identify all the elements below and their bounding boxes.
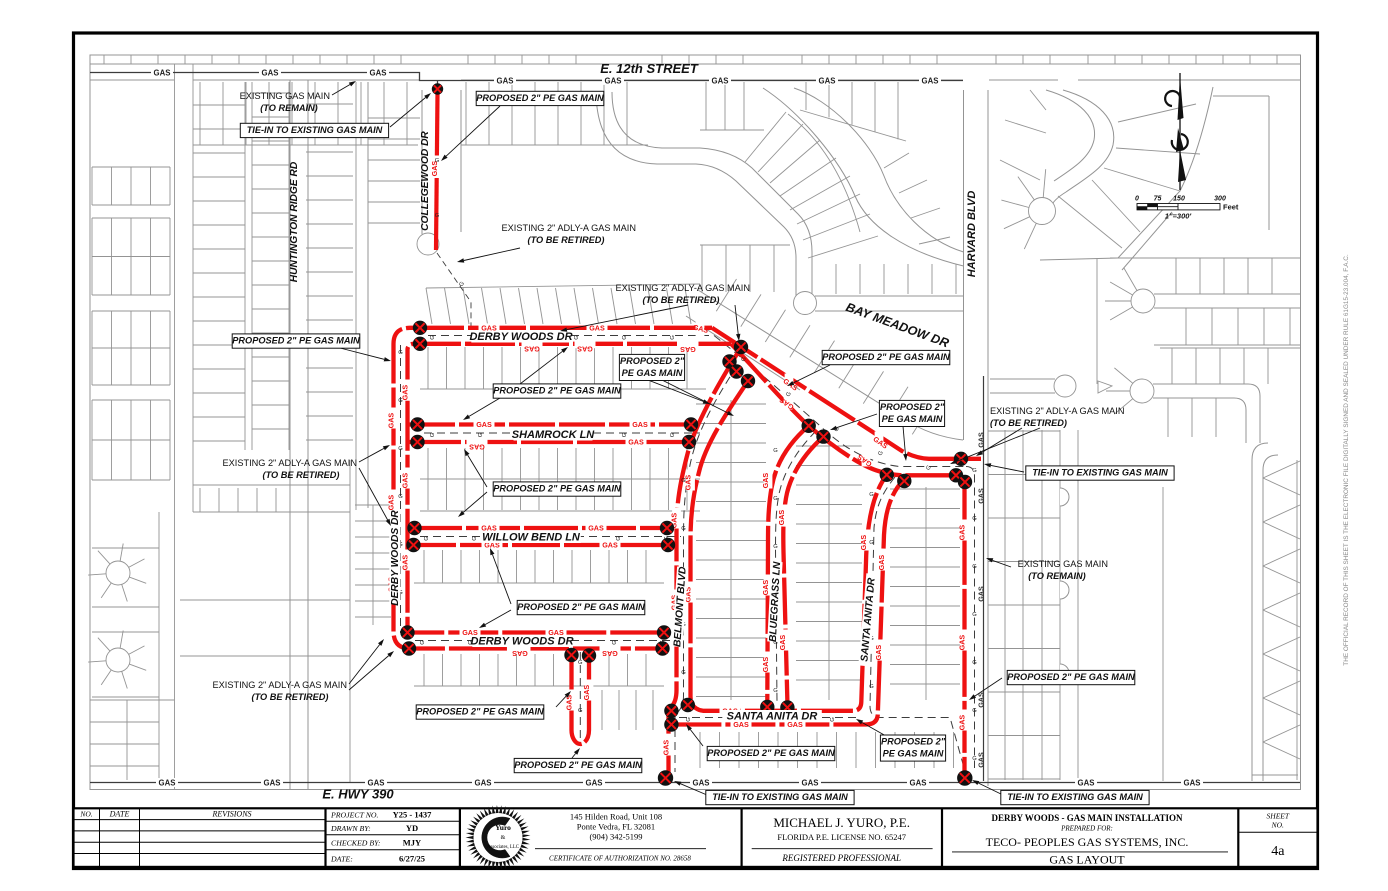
svg-text:WILLOW BEND LN: WILLOW BEND LN [482,532,581,544]
svg-text:PROPOSED 2": PROPOSED 2" [880,402,945,412]
svg-text:GAS: GAS [958,715,967,731]
svg-text:DERBY WOODS DR: DERBY WOODS DR [390,510,401,606]
svg-text:TECO- PEOPLES GAS SYSTEMS, INC: TECO- PEOPLES GAS SYSTEMS, INC. [986,835,1189,849]
svg-text:G: G [972,612,977,618]
svg-text:GAS: GAS [874,645,883,661]
svg-text:G: G [612,640,618,645]
svg-text:SANTA ANITA DR: SANTA ANITA DR [727,711,818,723]
svg-text:MJY: MJY [403,838,421,848]
svg-text:PROPOSED 2" PE GAS MAIN: PROPOSED 2" PE GAS MAIN [416,706,544,716]
svg-text:CERTIFICATE OF AUTHORIZATION N: CERTIFICATE OF AUTHORIZATION NO. 28658 [549,855,691,863]
svg-text:G: G [398,446,403,452]
svg-text:SHEET: SHEET [1267,812,1290,821]
svg-text:G: G [398,350,403,356]
svg-text:G: G [773,544,778,550]
svg-text:GAS: GAS [264,779,281,788]
svg-text:EXISTING 2" ADLY-A GAS MAIN: EXISTING 2" ADLY-A GAS MAIN [990,406,1124,416]
svg-text:GAS: GAS [387,495,396,511]
svg-text:G: G [622,432,628,437]
svg-text:G: G [972,516,977,522]
svg-text:DERBY WOODS - GAS MAIN INSTALL: DERBY WOODS - GAS MAIN INSTALLATION [992,813,1183,823]
svg-text:G: G [773,688,778,694]
svg-text:PROPOSED 2" PE GAS MAIN: PROPOSED 2" PE GAS MAIN [707,748,835,758]
svg-text:EXISTING GAS MAIN: EXISTING GAS MAIN [1018,559,1108,569]
svg-text:&: & [501,835,506,841]
svg-text:GAS: GAS [370,69,387,78]
svg-text:GAS: GAS [159,779,176,788]
svg-text:GAS: GAS [859,535,868,551]
svg-text:G: G [398,494,403,500]
svg-text:THE OFFICIAL RECORD OF THIS SH: THE OFFICIAL RECORD OF THIS SHEET IS THE… [1343,254,1350,666]
svg-text:GAS: GAS [977,586,986,602]
svg-text:G: G [670,335,676,340]
svg-text:(TO REMAIN): (TO REMAIN) [260,103,318,113]
svg-text:GAS: GAS [577,344,593,353]
svg-text:GAS: GAS [262,69,279,78]
svg-text:TIE-IN TO EXISTING GAS MAIN: TIE-IN TO EXISTING GAS MAIN [247,125,383,135]
svg-text:EXISTING 2" ADLY-A GAS MAIN: EXISTING 2" ADLY-A GAS MAIN [223,458,357,468]
svg-text:G: G [972,660,977,666]
svg-text:145 Hilden Road, Unit 108: 145 Hilden Road, Unit 108 [570,812,662,822]
svg-text:GAS: GAS [802,779,819,788]
svg-text:GAS: GAS [977,432,986,448]
svg-text:G: G [972,468,977,474]
svg-text:FLORIDA P.E. LICENSE NO. 65247: FLORIDA P.E. LICENSE NO. 65247 [777,832,906,842]
svg-text:GAS: GAS [761,580,770,596]
svg-text:PE GAS MAIN: PE GAS MAIN [882,414,943,424]
svg-text:G: G [670,432,676,437]
svg-text:150: 150 [1173,196,1185,203]
svg-text:E. HWY 390: E. HWY 390 [322,787,394,802]
svg-text:PROPOSED 2" PE GAS MAIN: PROPOSED 2" PE GAS MAIN [493,484,621,494]
svg-text:MICHAEL J. YURO, P.E.: MICHAEL J. YURO, P.E. [773,815,910,830]
svg-text:EXISTING GAS MAIN: EXISTING GAS MAIN [240,91,330,101]
svg-text:G: G [424,536,430,541]
svg-text:GAS: GAS [401,555,410,571]
svg-text:G: G [869,540,874,546]
svg-text:GAS: GAS [662,740,671,756]
svg-text:GAS: GAS [588,524,604,533]
svg-text:GAS: GAS [524,344,540,353]
svg-text:REVISIONS: REVISIONS [211,810,251,819]
svg-text:DATE: DATE [109,810,130,819]
svg-text:GAS: GAS [910,779,927,788]
svg-text:CHECKED BY:: CHECKED BY: [331,839,381,848]
svg-text:PROPOSED 2" PE GAS MAIN: PROPOSED 2" PE GAS MAIN [1007,672,1135,682]
svg-text:(TO REMAIN): (TO REMAIN) [1028,571,1086,581]
svg-text:HUNTINGTON RIDGE RD: HUNTINGTON RIDGE RD [289,161,300,282]
svg-text:GAS: GAS [1078,779,1095,788]
svg-text:SHAMROCK LN: SHAMROCK LN [512,429,596,441]
svg-text:G: G [435,158,440,164]
svg-text:GAS: GAS [602,649,618,658]
svg-text:G: G [616,536,622,541]
svg-text:E. 12th STREET: E. 12th STREET [600,61,699,76]
svg-text:DERBY WOODS DR: DERBY WOODS DR [470,636,573,648]
svg-text:DERBY WOODS DR: DERBY WOODS DR [469,331,572,343]
svg-text:GAS: GAS [819,77,836,86]
svg-text:Y25 - 1437: Y25 - 1437 [393,810,432,820]
svg-text:G: G [869,684,874,690]
svg-text:COLLEGEWOOD DR: COLLEGEWOOD DR [420,131,431,231]
svg-text:Ponte Vedra, FL 32081: Ponte Vedra, FL 32081 [577,822,655,832]
svg-text:(TO BE RETIRED): (TO BE RETIRED) [990,418,1067,428]
svg-text:TIE-IN TO EXISTING GAS MAIN: TIE-IN TO EXISTING GAS MAIN [1032,468,1168,478]
svg-text:GAS: GAS [475,779,492,788]
svg-text:GAS: GAS [602,541,618,550]
svg-text:Yuro: Yuro [495,823,511,832]
svg-text:GAS: GAS [680,345,696,354]
svg-text:GAS: GAS [1184,779,1201,788]
svg-text:PROJECT NO.: PROJECT NO. [330,811,379,820]
svg-text:(TO BE RETIRED): (TO BE RETIRED) [263,470,340,480]
svg-text:GAS LAYOUT: GAS LAYOUT [1049,853,1125,867]
svg-text:G: G [420,640,426,645]
svg-text:G: G [830,717,836,722]
svg-text:0: 0 [1135,196,1139,203]
svg-text:GAS: GAS [977,752,986,768]
svg-text:PROPOSED 2" PE GAS MAIN: PROPOSED 2" PE GAS MAIN [493,386,621,396]
svg-text:TIE-IN TO EXISTING GAS MAIN: TIE-IN TO EXISTING GAS MAIN [712,792,848,802]
svg-text:GAS: GAS [922,77,939,86]
svg-text:G: G [578,660,583,666]
svg-text:NO.: NO. [79,810,92,819]
svg-text:G: G [398,398,403,404]
svg-text:G: G [681,478,686,484]
svg-text:G: G [773,496,778,502]
svg-text:GAS: GAS [476,420,492,429]
svg-text:(TO BE RETIRED): (TO BE RETIRED) [528,235,605,245]
svg-text:Associates, LLC: Associates, LLC [487,845,519,850]
svg-text:NO.: NO. [1271,821,1284,830]
svg-text:GAS: GAS [586,779,603,788]
svg-text:PROPOSED 2" PE GAS MAIN: PROPOSED 2" PE GAS MAIN [232,336,360,346]
svg-text:G: G [478,432,484,437]
svg-text:EXISTING 2" ADLY-A GAS MAIN: EXISTING 2" ADLY-A GAS MAIN [616,283,750,293]
svg-text:HARVARD BLVD: HARVARD BLVD [966,191,978,278]
svg-text:6/27/25: 6/27/25 [399,854,425,864]
svg-text:GAS: GAS [401,473,410,489]
svg-text:G: G [435,213,440,219]
svg-text:Feet: Feet [1223,203,1239,212]
svg-text:PROPOSED 2" PE GAS MAIN: PROPOSED 2" PE GAS MAIN [476,93,604,103]
svg-text:TIE-IN TO EXISTING GAS MAIN: TIE-IN TO EXISTING GAS MAIN [1007,792,1143,802]
svg-text:GAS: GAS [387,413,396,429]
svg-text:G: G [869,492,874,498]
svg-text:(904) 342-5199: (904) 342-5199 [589,832,642,842]
svg-text:GAS: GAS [761,657,770,673]
svg-text:PROPOSED 2" PE GAS MAIN: PROPOSED 2" PE GAS MAIN [517,602,645,612]
svg-text:G: G [430,335,436,340]
svg-text:PE GAS MAIN: PE GAS MAIN [883,748,944,758]
svg-text:PREPARED FOR:: PREPARED FOR: [1060,825,1113,833]
svg-text:GAS: GAS [469,443,485,452]
svg-text:G: G [681,526,686,532]
svg-text:PROPOSED 2": PROPOSED 2" [881,737,946,747]
svg-text:GAS: GAS [582,685,591,701]
svg-text:G: G [972,756,977,762]
svg-text:PE GAS MAIN: PE GAS MAIN [622,368,683,378]
svg-text:YD: YD [406,823,418,833]
svg-text:G: G [578,708,583,714]
svg-text:G: G [773,448,778,454]
svg-text:4a: 4a [1271,844,1285,859]
svg-text:PROPOSED 2" PE GAS MAIN: PROPOSED 2" PE GAS MAIN [514,760,642,770]
svg-text:GAS: GAS [778,635,787,651]
svg-text:GAS: GAS [712,77,729,86]
svg-text:DRAWN BY:: DRAWN BY: [330,824,371,833]
svg-text:PROPOSED 2" PE GAS MAIN: PROPOSED 2" PE GAS MAIN [822,352,950,362]
svg-text:(TO BE RETIRED): (TO BE RETIRED) [643,295,720,305]
svg-text:GAS: GAS [777,510,786,526]
svg-text:GAS: GAS [958,635,967,651]
svg-text:GAS: GAS [693,779,710,788]
svg-text:G: G [686,717,692,722]
svg-text:GAS: GAS [877,555,886,571]
svg-text:G: G [472,536,478,541]
svg-text:EXISTING 2" ADLY-A GAS MAIN: EXISTING 2" ADLY-A GAS MAIN [502,223,636,233]
svg-text:300: 300 [1214,196,1226,203]
svg-text:75: 75 [1154,196,1162,203]
svg-text:GAS: GAS [497,77,514,86]
svg-text:(TO BE RETIRED): (TO BE RETIRED) [252,692,329,702]
svg-text:GAS: GAS [761,473,770,489]
svg-text:GAS: GAS [628,438,644,447]
svg-text:G: G [574,335,580,340]
svg-text:GAS: GAS [605,77,622,86]
svg-text:G: G [430,432,436,437]
svg-text:G: G [972,564,977,570]
svg-text:PROPOSED 2": PROPOSED 2" [620,356,685,366]
svg-text:GAS: GAS [154,69,171,78]
svg-text:GAS: GAS [977,488,986,504]
svg-text:GAS: GAS [512,649,528,658]
svg-text:GAS: GAS [958,525,967,541]
svg-text:G: G [972,708,977,714]
svg-text:G: G [681,670,686,676]
svg-text:EXISTING 2" ADLY-A GAS MAIN: EXISTING 2" ADLY-A GAS MAIN [213,680,347,690]
svg-text:1"=300': 1"=300' [1165,212,1192,221]
svg-text:DATE:: DATE: [330,855,353,864]
svg-text:REGISTERED PROFESSIONAL: REGISTERED PROFESSIONAL [781,853,901,863]
svg-text:G: G [622,335,628,340]
svg-text:GAS: GAS [632,420,648,429]
